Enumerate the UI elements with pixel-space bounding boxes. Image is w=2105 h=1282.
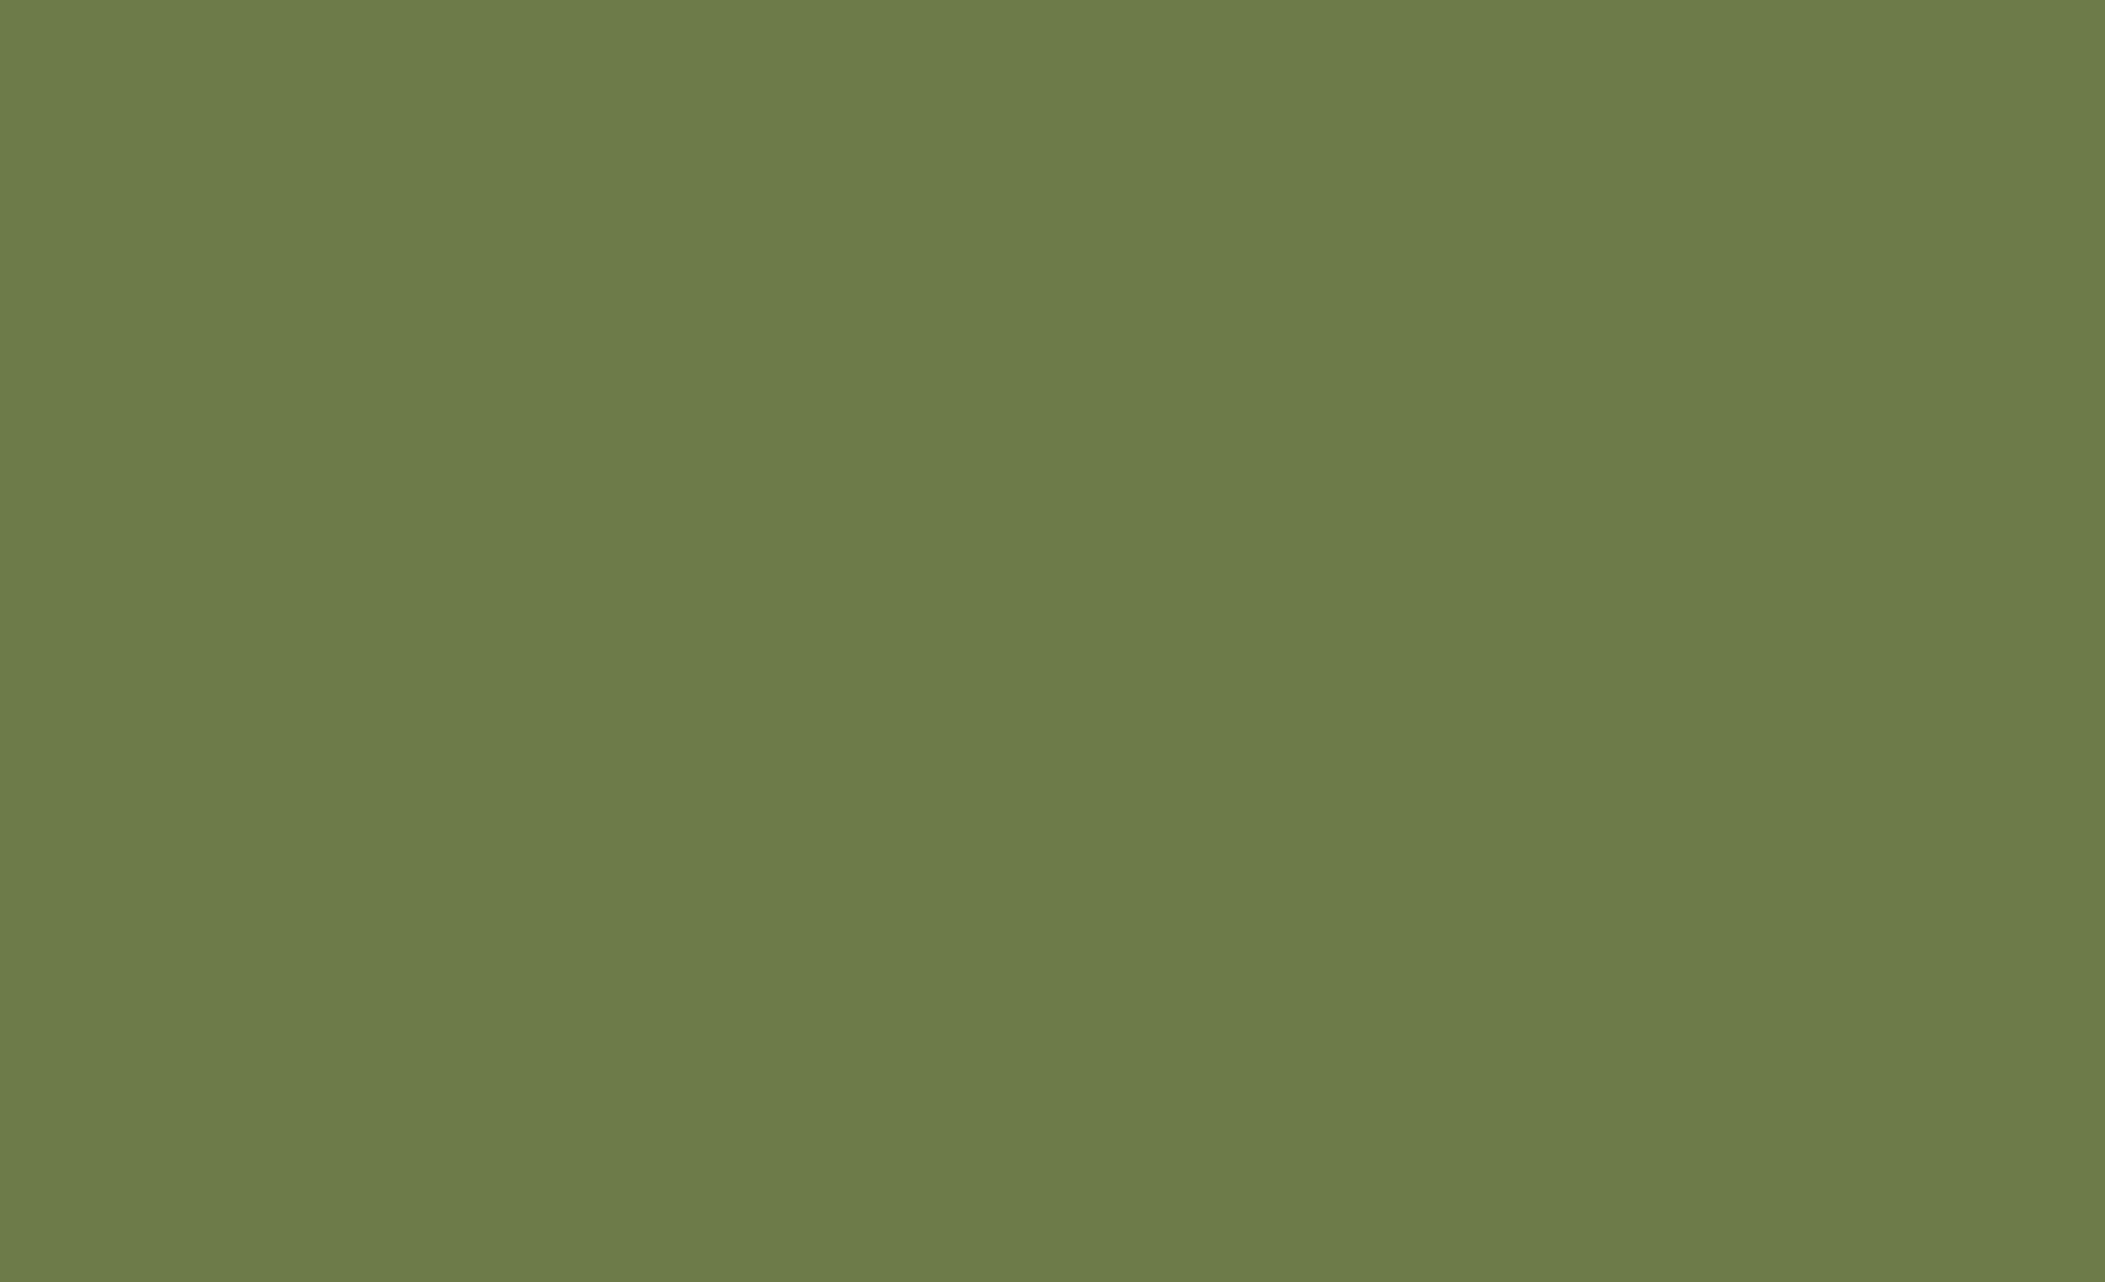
rendered-scene-canvas <box>0 0 2105 1282</box>
aerial-masterplan-rendering <box>0 0 2105 1282</box>
